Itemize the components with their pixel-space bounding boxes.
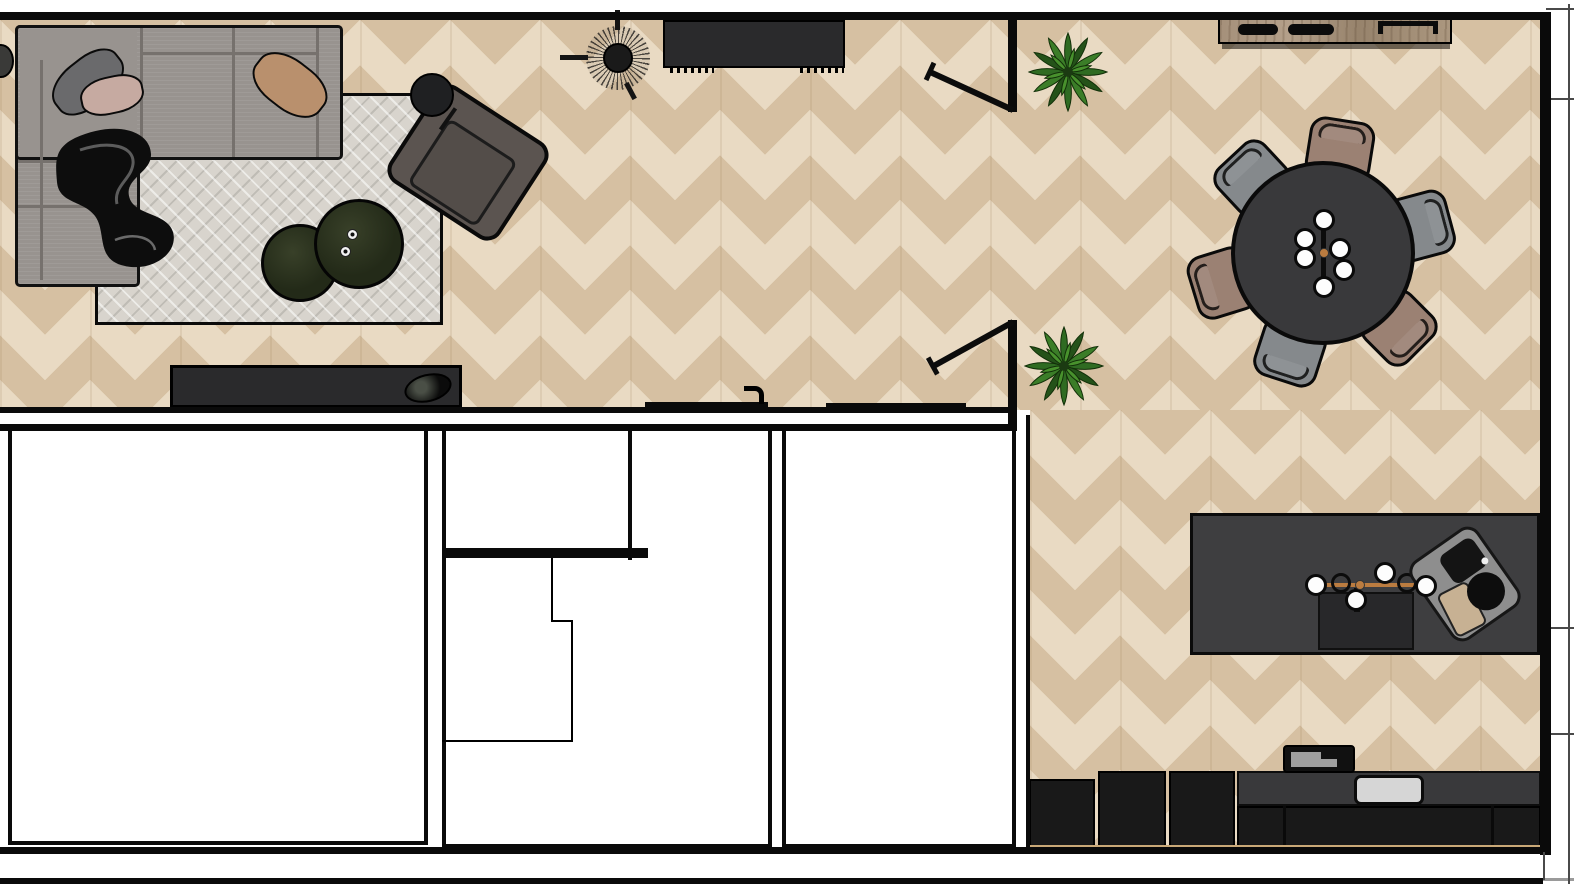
countertop-appliance bbox=[1283, 745, 1355, 773]
sliding-door-handle bbox=[744, 386, 764, 404]
island-globe-1 bbox=[1305, 574, 1327, 596]
island-pendant-canopy bbox=[1355, 580, 1365, 590]
potted-plant-upper bbox=[1022, 26, 1114, 118]
margin-tick-4 bbox=[1551, 733, 1574, 735]
kitchen-sink bbox=[1354, 775, 1424, 805]
room-bottom-left bbox=[8, 427, 428, 845]
sideboard-slot-1 bbox=[1238, 24, 1278, 35]
partition-line-v2 bbox=[571, 620, 573, 742]
wall-vertical-outer bbox=[1026, 415, 1030, 852]
margin-tick-3 bbox=[1551, 627, 1574, 629]
island-globe-4 bbox=[1415, 575, 1437, 597]
chandelier-globe-6 bbox=[1313, 276, 1335, 298]
partition-line-h1 bbox=[551, 620, 573, 622]
fan-hub bbox=[603, 43, 633, 73]
room-bottom-middle bbox=[442, 427, 772, 848]
chaise-armrest-seam bbox=[40, 60, 43, 280]
sliding-door-right bbox=[826, 403, 966, 412]
wall-top bbox=[0, 12, 1551, 20]
chair-back bbox=[1318, 122, 1368, 145]
candle-1 bbox=[347, 229, 358, 240]
entry-wall-stub-lower bbox=[1008, 320, 1017, 431]
entry-console-feet-left bbox=[670, 68, 714, 73]
chandelier-globe-5 bbox=[1333, 259, 1355, 281]
partition-line-v1 bbox=[551, 558, 553, 622]
fan-arm-left bbox=[560, 55, 588, 60]
entry-console bbox=[663, 20, 845, 68]
entry-wall-stub-upper bbox=[1008, 20, 1017, 112]
chandelier-globe-3 bbox=[1294, 247, 1316, 269]
wall-vertical-inner bbox=[1012, 407, 1016, 852]
appliance-notch bbox=[1321, 752, 1337, 759]
chandelier-globe-1 bbox=[1313, 209, 1335, 231]
potted-plant-lower bbox=[1018, 320, 1110, 412]
wall-cavity-vertical bbox=[1016, 413, 1026, 852]
sideboard-shadow bbox=[1222, 44, 1450, 49]
chandelier-globe-4 bbox=[1329, 238, 1351, 260]
entry-console-feet-right bbox=[800, 68, 844, 73]
margin-tick-2 bbox=[1551, 98, 1574, 100]
island-globe-3 bbox=[1345, 589, 1367, 611]
chandelier-canopy bbox=[1319, 248, 1329, 258]
margin-tick-1 bbox=[1546, 8, 1574, 10]
throw-blanket bbox=[55, 120, 205, 280]
sideboard-slot-2 bbox=[1288, 24, 1334, 35]
partition-line-h2 bbox=[442, 740, 573, 742]
subroom-wall-vertical bbox=[628, 427, 632, 560]
wall-lower-line-bottom bbox=[0, 424, 1016, 431]
margin-tick-vertical-bottom bbox=[1543, 852, 1545, 880]
apartment-floor-plan bbox=[0, 0, 1574, 885]
island-pendant-ring-1 bbox=[1331, 573, 1351, 593]
subroom-wall-thick bbox=[442, 548, 648, 558]
margin-line-vertical bbox=[1568, 4, 1570, 884]
floor-lamp bbox=[410, 73, 454, 117]
wall-bottom-main bbox=[0, 847, 1545, 854]
ceiling-fan-lamp bbox=[586, 26, 650, 90]
drawing-bottom-border bbox=[0, 878, 1543, 884]
sofa-seam-v2 bbox=[232, 28, 235, 157]
tall-cabinet-3 bbox=[1169, 771, 1235, 852]
island-globe-2 bbox=[1374, 562, 1396, 584]
candle-2 bbox=[340, 246, 351, 257]
sideboard-bracket bbox=[1378, 21, 1438, 34]
room-bottom-right bbox=[782, 427, 1016, 848]
chair-back bbox=[1423, 196, 1451, 247]
nesting-coffee-table-large bbox=[314, 199, 404, 289]
tall-cabinet-1 bbox=[1029, 779, 1095, 852]
wall-right bbox=[1540, 12, 1551, 855]
tall-cabinet-2 bbox=[1098, 771, 1166, 852]
